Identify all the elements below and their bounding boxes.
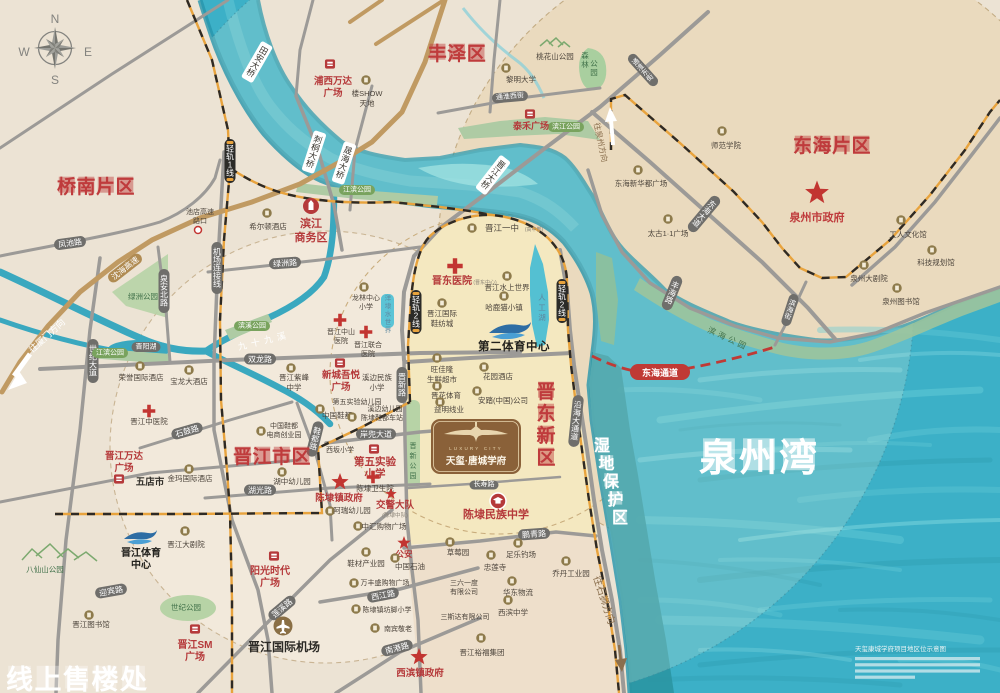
svg-text:晋东医院: 晋东医院	[432, 274, 472, 287]
svg-text:区: 区	[612, 509, 628, 527]
svg-text:溪边民族: 溪边民族	[362, 372, 392, 382]
svg-text:池店高速: 池店高速	[186, 207, 214, 216]
svg-text:东海新华都广场: 东海新华都广场	[615, 178, 668, 188]
svg-text:工: 工	[538, 303, 546, 312]
svg-text:师范学院: 师范学院	[711, 140, 741, 150]
svg-text:园: 园	[410, 472, 417, 480]
svg-text:林: 林	[581, 59, 589, 69]
svg-text:园: 园	[590, 68, 598, 77]
svg-text:金玛国际酒店: 金玛国际酒店	[168, 473, 213, 483]
svg-text:天玺康城学府项目地区位示意图: 天玺康城学府项目地区位示意图	[855, 644, 946, 653]
svg-text:道: 道	[89, 368, 97, 378]
svg-text:三斯达有限公司: 三斯达有限公司	[441, 612, 490, 621]
svg-text:陈埭镇坊脚小学: 陈埭镇坊脚小学	[363, 605, 412, 614]
svg-text:晋江中医院: 晋江中医院	[130, 416, 168, 426]
svg-text:哈鹿猫小镇: 哈鹿猫小镇	[485, 302, 523, 312]
svg-text:晋江SM: 晋江SM	[178, 638, 213, 651]
svg-text:晋江中山: 晋江中山	[327, 327, 355, 336]
svg-text:小学: 小学	[359, 302, 373, 311]
svg-text:晋江体育: 晋江体育	[121, 546, 161, 559]
svg-text:东: 东	[536, 402, 555, 425]
svg-text:LUXURY CITY: LUXURY CITY	[449, 446, 503, 451]
svg-text:医院: 医院	[334, 336, 348, 345]
svg-text:陈埭鞋都车站: 陈埭鞋都车站	[361, 413, 403, 422]
svg-text:滨江: 滨江	[300, 216, 322, 230]
svg-text:绿洲路: 绿洲路	[273, 257, 298, 269]
svg-text:湖: 湖	[538, 313, 546, 322]
svg-text:草莓园: 草莓园	[447, 547, 470, 557]
svg-text:南宾敬老: 南宾敬老	[384, 624, 412, 633]
svg-text:广场: 广场	[331, 381, 351, 393]
svg-text:泉州市政府: 泉州市政府	[789, 210, 845, 224]
svg-text:滨江公园: 滨江公园	[552, 121, 580, 130]
svg-text:江滨公园: 江滨公园	[343, 184, 371, 193]
svg-text:地: 地	[598, 454, 614, 473]
svg-text:W: W	[18, 45, 30, 59]
svg-text:泰禾广场: 泰禾广场	[512, 120, 549, 131]
svg-text:中国石油: 中国石油	[395, 561, 425, 571]
svg-text:晋江大剧院: 晋江大剧院	[167, 539, 205, 549]
svg-text:森: 森	[581, 50, 589, 60]
svg-text:阿瑞幼儿园: 阿瑞幼儿园	[333, 505, 371, 515]
svg-text:湖中幼儿园: 湖中幼儿园	[273, 476, 311, 486]
svg-text:水: 水	[385, 309, 392, 318]
svg-text:第二体育中心: 第二体育中心	[478, 339, 550, 353]
svg-text:安踏(中国)公司: 安踏(中国)公司	[478, 395, 528, 405]
svg-text:路: 路	[160, 298, 168, 308]
svg-text:线: 线	[226, 168, 234, 178]
svg-text:忠莲寺: 忠莲寺	[484, 562, 507, 572]
svg-text:道: 道	[570, 431, 579, 442]
svg-text:陈埭民族中学: 陈埭民族中学	[463, 507, 529, 521]
svg-text:公: 公	[410, 462, 417, 470]
svg-text:公: 公	[590, 59, 598, 68]
svg-text:中国鞋都: 中国鞋都	[270, 421, 298, 430]
svg-text:万丰盛购物广场: 万丰盛购物广场	[361, 578, 410, 587]
svg-text:陈埭镇政府: 陈埭镇政府	[315, 492, 363, 504]
svg-text:中心: 中心	[131, 558, 151, 571]
svg-text:鞋材产业园: 鞋材产业园	[347, 558, 385, 568]
svg-text:保: 保	[602, 472, 620, 491]
svg-text:乔丹工业园: 乔丹工业园	[552, 568, 590, 578]
svg-text:足乐钓场: 足乐钓场	[506, 549, 536, 559]
svg-text:宝龙大酒店: 宝龙大酒店	[170, 376, 208, 386]
svg-text:新: 新	[536, 424, 555, 447]
svg-text:龙林中心: 龙林中心	[352, 293, 380, 302]
svg-text:荣誉国际酒店: 荣誉国际酒店	[119, 372, 164, 382]
svg-text:(陈埭中队): (陈埭中队)	[382, 511, 408, 519]
svg-text:中学: 中学	[287, 382, 302, 392]
svg-text:桥南片区: 桥南片区	[57, 175, 135, 198]
svg-text:晋江国际机场: 晋江国际机场	[248, 639, 320, 654]
svg-text:世纪公园: 世纪公园	[171, 602, 201, 612]
svg-text:黎明大学: 黎明大学	[506, 74, 536, 84]
svg-text:华东物流: 华东物流	[503, 587, 533, 597]
svg-text:天玺·唐城学府: 天玺·唐城学府	[446, 455, 507, 467]
svg-text:(高中部): (高中部)	[525, 226, 544, 233]
svg-text:科技规划馆: 科技规划馆	[917, 257, 955, 267]
svg-text:益明线业: 益明线业	[434, 404, 464, 414]
svg-text:晋江一中: 晋江一中	[485, 223, 519, 233]
svg-text:晋江紫峰: 晋江紫峰	[279, 372, 309, 382]
svg-text:第五实验幼儿园: 第五实验幼儿园	[333, 397, 382, 406]
svg-text:滨溪公园: 滨溪公园	[238, 320, 266, 329]
svg-text:区: 区	[536, 448, 555, 469]
svg-text:晋江万达: 晋江万达	[105, 450, 144, 462]
svg-text:长寿路: 长寿路	[474, 479, 495, 488]
svg-text:晋: 晋	[410, 442, 417, 450]
svg-text:江滨公园: 江滨公园	[96, 347, 124, 356]
svg-text:泉州图书馆: 泉州图书馆	[882, 296, 920, 306]
svg-text:浦西万达: 浦西万达	[314, 75, 353, 87]
svg-text:有限公司: 有限公司	[450, 587, 478, 596]
svg-text:西滨中学: 西滨中学	[498, 607, 528, 617]
svg-text:工人文化馆: 工人文化馆	[889, 229, 927, 239]
svg-text:阳光时代: 阳光时代	[250, 564, 290, 577]
svg-text:医院: 医院	[361, 349, 375, 358]
svg-text:桃花山公园: 桃花山公园	[536, 51, 574, 61]
svg-text:广场: 广场	[323, 87, 343, 99]
svg-text:生鲜超市: 生鲜超市	[427, 374, 457, 384]
svg-text:双龙路: 双龙路	[248, 354, 272, 364]
svg-text:希尔顿酒店: 希尔顿酒店	[249, 221, 287, 231]
svg-text:西滨镇政府: 西滨镇政府	[396, 667, 444, 679]
svg-text:广场: 广场	[185, 650, 205, 663]
svg-text:泉州湾: 泉州湾	[699, 437, 819, 480]
svg-text:商务区: 商务区	[295, 230, 328, 244]
svg-text:线: 线	[558, 308, 566, 318]
svg-text:晋江市区: 晋江市区	[233, 445, 311, 468]
svg-text:三六一度: 三六一度	[450, 578, 478, 587]
svg-text:鹏青路: 鹏青路	[522, 528, 547, 540]
svg-text:线上售楼处: 线上售楼处	[6, 664, 149, 693]
svg-text:第五实验: 第五实验	[354, 455, 396, 468]
svg-text:晋: 晋	[536, 381, 555, 403]
svg-text:丰泽区: 丰泽区	[428, 42, 487, 65]
svg-text:路口: 路口	[193, 216, 207, 225]
svg-text:晋花体育: 晋花体育	[431, 390, 461, 400]
svg-text:绿洲公园: 绿洲公园	[128, 292, 158, 301]
svg-text:小学: 小学	[370, 382, 385, 392]
svg-text:泉州大剧院: 泉州大剧院	[850, 273, 888, 283]
svg-text:晋江国际: 晋江国际	[427, 309, 457, 318]
svg-text:花园酒店: 花园酒店	[483, 371, 513, 381]
svg-text:晋阳湖: 晋阳湖	[136, 341, 157, 350]
svg-text:湖光路: 湖光路	[248, 485, 272, 495]
svg-text:交警大队: 交警大队	[376, 499, 415, 511]
svg-text:界: 界	[385, 326, 392, 334]
svg-text:广场: 广场	[114, 462, 134, 474]
svg-text:电商创业园: 电商创业园	[267, 430, 302, 439]
svg-text:新: 新	[410, 451, 417, 460]
svg-text:线: 线	[213, 279, 221, 289]
svg-text:新城吾悦: 新城吾悦	[322, 369, 361, 381]
svg-text:楼SHOW: 楼SHOW	[352, 88, 384, 98]
svg-text:人: 人	[538, 293, 546, 302]
svg-text:世: 世	[385, 317, 392, 326]
svg-text:晋江联合: 晋江联合	[354, 340, 382, 349]
svg-text:东海片区: 东海片区	[793, 134, 871, 157]
svg-text:天地: 天地	[360, 98, 375, 108]
svg-text:湿: 湿	[593, 437, 610, 455]
svg-text:线: 线	[412, 319, 420, 329]
svg-text:N: N	[51, 12, 60, 26]
svg-text:东海通道: 东海通道	[642, 367, 678, 378]
svg-text:鞋纺城: 鞋纺城	[431, 318, 454, 328]
svg-text:太古1·1广场: 太古1·1广场	[648, 228, 689, 238]
svg-text:路: 路	[398, 388, 406, 398]
svg-text:岸兜大道: 岸兜大道	[360, 429, 392, 439]
svg-text:西坂小学: 西坂小学	[326, 445, 354, 454]
svg-text:E: E	[84, 45, 92, 59]
svg-text:晋江裕福集团: 晋江裕福集团	[460, 647, 505, 657]
svg-text:陈埭卫生院: 陈埭卫生院	[356, 483, 394, 493]
svg-text:广场: 广场	[260, 576, 280, 589]
svg-text:五店市: 五店市	[136, 476, 165, 488]
svg-text:溪边幼儿园: 溪边幼儿园	[368, 404, 403, 413]
svg-text:S: S	[51, 73, 59, 87]
svg-text:护: 护	[607, 490, 623, 509]
svg-text:旺佳隆: 旺佳隆	[431, 364, 454, 374]
svg-text:晋江图书馆: 晋江图书馆	[72, 619, 110, 629]
svg-text:晋江水上世界: 晋江水上世界	[485, 282, 530, 292]
svg-text:埭: 埭	[385, 301, 392, 310]
svg-text:中汇购物广场: 中汇购物广场	[362, 521, 407, 531]
svg-text:八仙山公园: 八仙山公园	[26, 564, 64, 574]
svg-text:洋: 洋	[385, 293, 392, 302]
